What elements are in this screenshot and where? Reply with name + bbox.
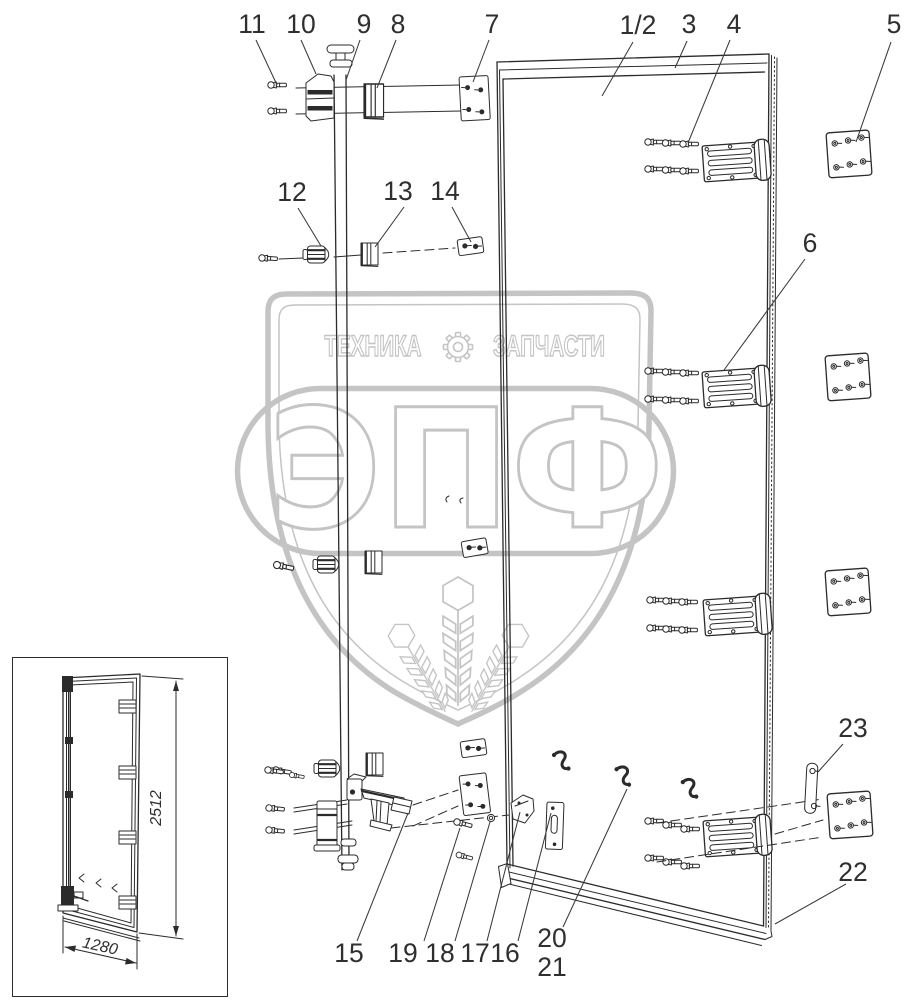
callout-label-16: 16 (490, 938, 519, 968)
plate (460, 739, 487, 758)
callout-label-5: 5 (887, 9, 902, 39)
striker-17 (511, 795, 534, 823)
brand-watermark: ТЕХНИКА ЗАПЧАСТИ ЭПФ (238, 293, 674, 724)
callout-leader-1/2 (602, 42, 633, 96)
callout-leader-12 (298, 208, 321, 246)
callout-leader-20 (563, 789, 627, 927)
bracket-10 (306, 74, 334, 121)
bolt-11 (268, 82, 287, 88)
callout-label-9: 9 (357, 9, 372, 39)
bottom-rod-mounts (272, 739, 487, 780)
inset-height-dim: 2512 (148, 790, 165, 827)
door-assembly-diagram: ТЕХНИКА ЗАПЧАСТИ ЭПФ (0, 0, 917, 1000)
inset-door (58, 674, 140, 941)
callout-leader-3 (675, 41, 687, 68)
callout-leader-5 (856, 42, 891, 142)
hinges-and-plates (645, 130, 873, 869)
watermark-logo-text: ЭПФ (268, 374, 664, 566)
knob (314, 760, 340, 777)
callout-leader-23 (818, 744, 843, 772)
callout-leader-16 (518, 813, 551, 941)
inset-hinges (119, 700, 136, 909)
callout-leader-13 (375, 207, 404, 247)
mid-rod-mounts (259, 237, 484, 267)
callout-leader-8 (377, 40, 396, 88)
knob-12 (303, 246, 329, 263)
callout-leader-22 (775, 884, 846, 924)
callout-leader-17 (487, 812, 520, 941)
callout-label-11: 11 (238, 9, 266, 39)
callout-leader-11 (256, 40, 277, 85)
callout-label-1/2: 1/2 (620, 10, 657, 40)
link-strap-23 (804, 763, 820, 814)
inset-width-dim: 1280 (81, 934, 120, 958)
handle-15 (347, 774, 412, 831)
backing-plate-top (826, 130, 872, 178)
backing-plate-upper-middle (825, 353, 871, 401)
callout-label-14: 14 (430, 176, 459, 206)
watermark-right-text: ЗАПЧАСТИ (493, 330, 605, 363)
backing-plate-bottom (827, 791, 873, 839)
overview-inset: 2512 1280 (13, 658, 228, 997)
callout-label-18: 18 (425, 938, 454, 968)
callout-leader-14 (452, 207, 471, 242)
bolt (455, 851, 473, 861)
callout-leader-10 (301, 40, 316, 74)
bolt (266, 827, 285, 835)
lock-cylinder (314, 801, 340, 851)
bolt (289, 772, 305, 780)
callout-label-21: 21 (537, 952, 566, 982)
bolt (259, 255, 278, 262)
clamp (366, 753, 383, 776)
callout-label-12: 12 (277, 177, 306, 207)
callout-label-15: 15 (334, 938, 363, 968)
clamp-8 (364, 84, 384, 119)
callout-label-8: 8 (391, 9, 406, 39)
backing-plate-lower-middle (825, 568, 871, 616)
callout-label-20: 20 (537, 923, 566, 953)
callout-leader-18 (455, 822, 490, 941)
callout-label-6: 6 (803, 228, 818, 258)
top-rod-mounts (268, 74, 490, 121)
watermark-left-text: ТЕХНИКА (325, 330, 422, 363)
gear-icon (444, 333, 473, 362)
hinge-upper-middle (702, 365, 772, 411)
callout-label-3: 3 (682, 9, 697, 39)
callout-label-10: 10 (286, 9, 315, 39)
callout-leader-15 (357, 813, 408, 941)
callout-label-13: 13 (383, 176, 412, 206)
bolt-11 (268, 108, 287, 114)
latch-mount-plate (459, 773, 491, 816)
callout-label-22: 22 (838, 857, 867, 887)
hinge-lower-middle (703, 593, 773, 639)
nut-18 (487, 814, 494, 821)
parts-catalog-page: ТЕХНИКА ЗАПЧАСТИ ЭПФ (0, 0, 917, 1000)
callout-label-19: 19 (388, 938, 417, 968)
hinge-bottom (703, 814, 773, 860)
callout-leader-6 (724, 259, 805, 370)
hinge-top (702, 139, 772, 185)
clamp (365, 551, 382, 574)
rod-handle-cap (327, 45, 354, 53)
callout-label-23: 23 (838, 713, 867, 743)
callout-leader-19 (424, 828, 460, 941)
callout-label-17: 17 (460, 938, 489, 968)
plate-14 (457, 237, 484, 256)
bolt (266, 805, 285, 813)
callout-label-7: 7 (485, 9, 500, 39)
callout-label-4: 4 (727, 9, 742, 39)
plate-7 (459, 75, 490, 120)
